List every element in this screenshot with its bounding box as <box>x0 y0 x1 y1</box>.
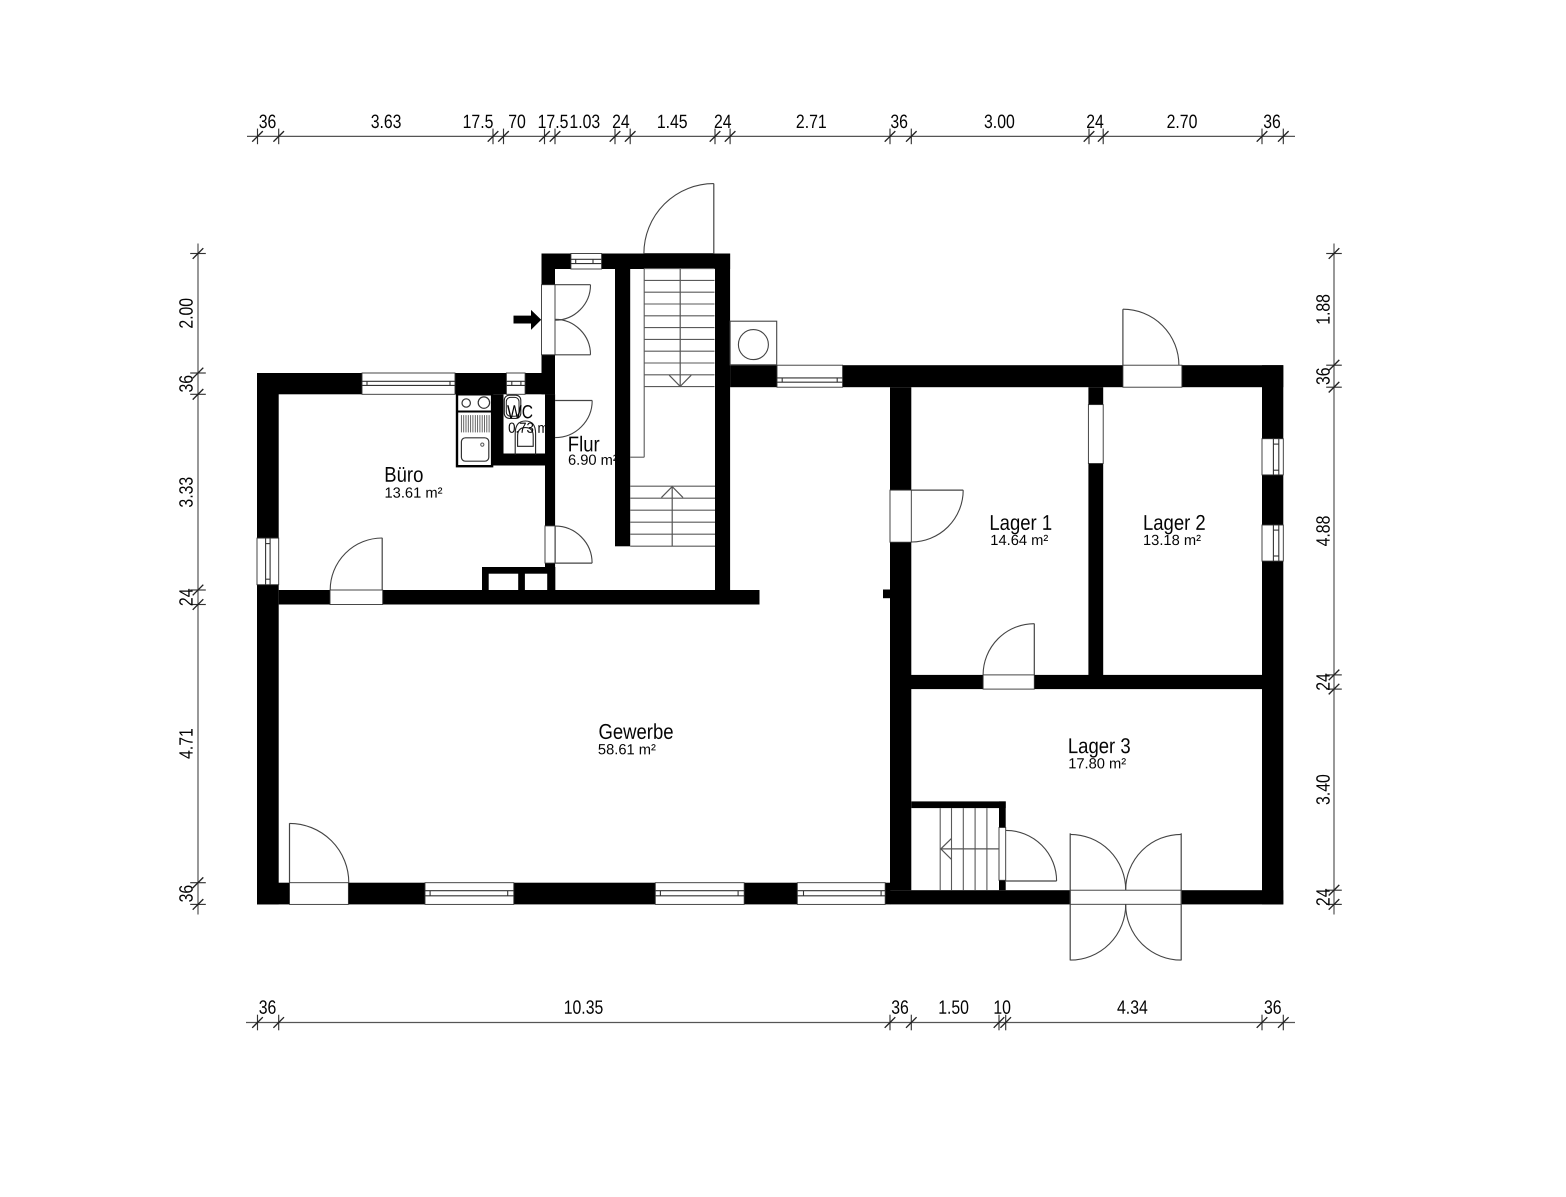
svg-text:3.00: 3.00 <box>984 110 1015 132</box>
svg-text:13.18 m²: 13.18 m² <box>1143 533 1201 549</box>
svg-text:3.40: 3.40 <box>1312 774 1334 805</box>
svg-text:24: 24 <box>175 588 197 606</box>
svg-text:2.00: 2.00 <box>175 298 197 329</box>
svg-text:36: 36 <box>259 996 277 1018</box>
svg-text:24: 24 <box>714 110 732 132</box>
svg-text:36: 36 <box>259 110 277 132</box>
svg-text:4.71: 4.71 <box>175 728 197 759</box>
svg-text:Gewerbe: Gewerbe <box>598 721 673 745</box>
svg-text:70: 70 <box>508 110 526 132</box>
svg-text:Lager 2: Lager 2 <box>1143 512 1206 536</box>
svg-text:14.64 m²: 14.64 m² <box>990 533 1048 549</box>
svg-text:1.50: 1.50 <box>938 996 969 1018</box>
svg-text:58.61 m²: 58.61 m² <box>598 742 656 758</box>
svg-text:2.70: 2.70 <box>1167 110 1198 132</box>
svg-text:36: 36 <box>1312 367 1334 385</box>
svg-text:10: 10 <box>993 996 1011 1018</box>
svg-text:4.88: 4.88 <box>1312 515 1334 546</box>
svg-text:36: 36 <box>175 375 197 393</box>
svg-text:2.71: 2.71 <box>796 110 827 132</box>
svg-text:1.03: 1.03 <box>569 110 600 132</box>
svg-text:Lager 3: Lager 3 <box>1068 735 1131 759</box>
svg-text:6.90 m²: 6.90 m² <box>568 453 618 469</box>
svg-text:36: 36 <box>175 885 197 903</box>
svg-text:Lager 1: Lager 1 <box>989 512 1052 536</box>
svg-text:36: 36 <box>1263 110 1281 132</box>
svg-text:17.5: 17.5 <box>463 110 494 132</box>
svg-text:13.61 m²: 13.61 m² <box>384 486 442 502</box>
svg-text:3.63: 3.63 <box>371 110 402 132</box>
svg-text:Büro: Büro <box>384 464 423 488</box>
svg-text:0.73 m²: 0.73 m² <box>508 419 553 436</box>
svg-text:1.88: 1.88 <box>1312 294 1334 325</box>
svg-text:3.33: 3.33 <box>175 477 197 508</box>
svg-text:36: 36 <box>891 996 909 1018</box>
svg-text:36: 36 <box>890 110 908 132</box>
svg-text:24: 24 <box>1312 888 1334 906</box>
svg-text:36: 36 <box>1264 996 1282 1018</box>
svg-text:24: 24 <box>612 110 630 132</box>
svg-text:17.5: 17.5 <box>538 110 569 132</box>
svg-text:4.34: 4.34 <box>1117 996 1148 1018</box>
svg-text:24: 24 <box>1086 110 1104 132</box>
svg-text:17.80 m²: 17.80 m² <box>1068 756 1126 772</box>
svg-text:24: 24 <box>1312 673 1334 691</box>
svg-text:1.45: 1.45 <box>657 110 688 132</box>
svg-text:10.35: 10.35 <box>564 996 604 1018</box>
